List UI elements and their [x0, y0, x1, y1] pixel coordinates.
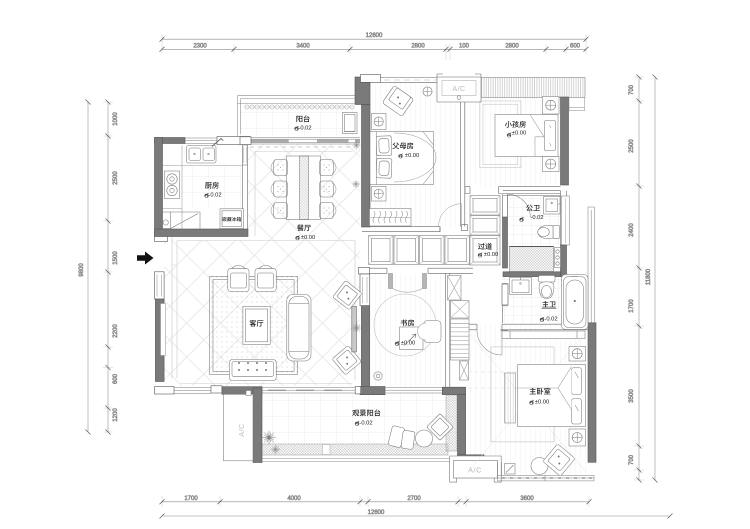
svg-text:±0.00: ±0.00 — [301, 235, 315, 241]
svg-text:-0.02: -0.02 — [544, 317, 557, 323]
svg-text:12600: 12600 — [368, 510, 385, 516]
svg-text:2200: 2200 — [113, 324, 119, 338]
svg-text:2300: 2300 — [193, 43, 207, 49]
svg-text:1000: 1000 — [113, 112, 119, 126]
svg-text:700: 700 — [629, 454, 635, 465]
svg-text:-0.02: -0.02 — [530, 215, 543, 221]
svg-text:±0.00: ±0.00 — [401, 341, 415, 347]
svg-text:600: 600 — [570, 43, 581, 49]
svg-text:A/C: A/C — [468, 466, 482, 475]
svg-text:4000: 4000 — [287, 496, 301, 502]
svg-text:±0.00: ±0.00 — [484, 252, 498, 258]
svg-text:-0.02: -0.02 — [298, 126, 311, 132]
svg-text:12600: 12600 — [366, 33, 383, 39]
svg-text:±0.00: ±0.00 — [512, 131, 526, 137]
svg-text:2400: 2400 — [629, 223, 635, 237]
svg-text:2500: 2500 — [629, 139, 635, 153]
svg-text:1500: 1500 — [113, 251, 119, 265]
svg-text:A/C: A/C — [239, 423, 246, 436]
svg-text:2800: 2800 — [505, 43, 519, 49]
svg-text:700: 700 — [629, 84, 635, 95]
svg-text:2800: 2800 — [411, 43, 425, 49]
svg-text:600: 600 — [113, 373, 119, 384]
svg-text:11800: 11800 — [646, 268, 652, 285]
svg-text:1200: 1200 — [113, 408, 119, 422]
svg-text:1700: 1700 — [629, 299, 635, 313]
svg-text:2500: 2500 — [113, 171, 119, 185]
svg-text:±0.00: ±0.00 — [405, 153, 419, 159]
svg-text:1700: 1700 — [184, 496, 198, 502]
svg-text:-0.02: -0.02 — [359, 421, 372, 427]
svg-text:-0.02: -0.02 — [208, 193, 221, 199]
svg-text:100: 100 — [459, 43, 470, 49]
svg-text:3500: 3500 — [629, 389, 635, 403]
svg-text:A/C: A/C — [452, 86, 465, 93]
svg-text:3400: 3400 — [296, 43, 310, 49]
svg-text:2700: 2700 — [407, 496, 421, 502]
svg-text:±0.00: ±0.00 — [535, 400, 549, 406]
svg-text:3600: 3600 — [520, 496, 534, 502]
svg-text:9800: 9800 — [79, 263, 85, 277]
